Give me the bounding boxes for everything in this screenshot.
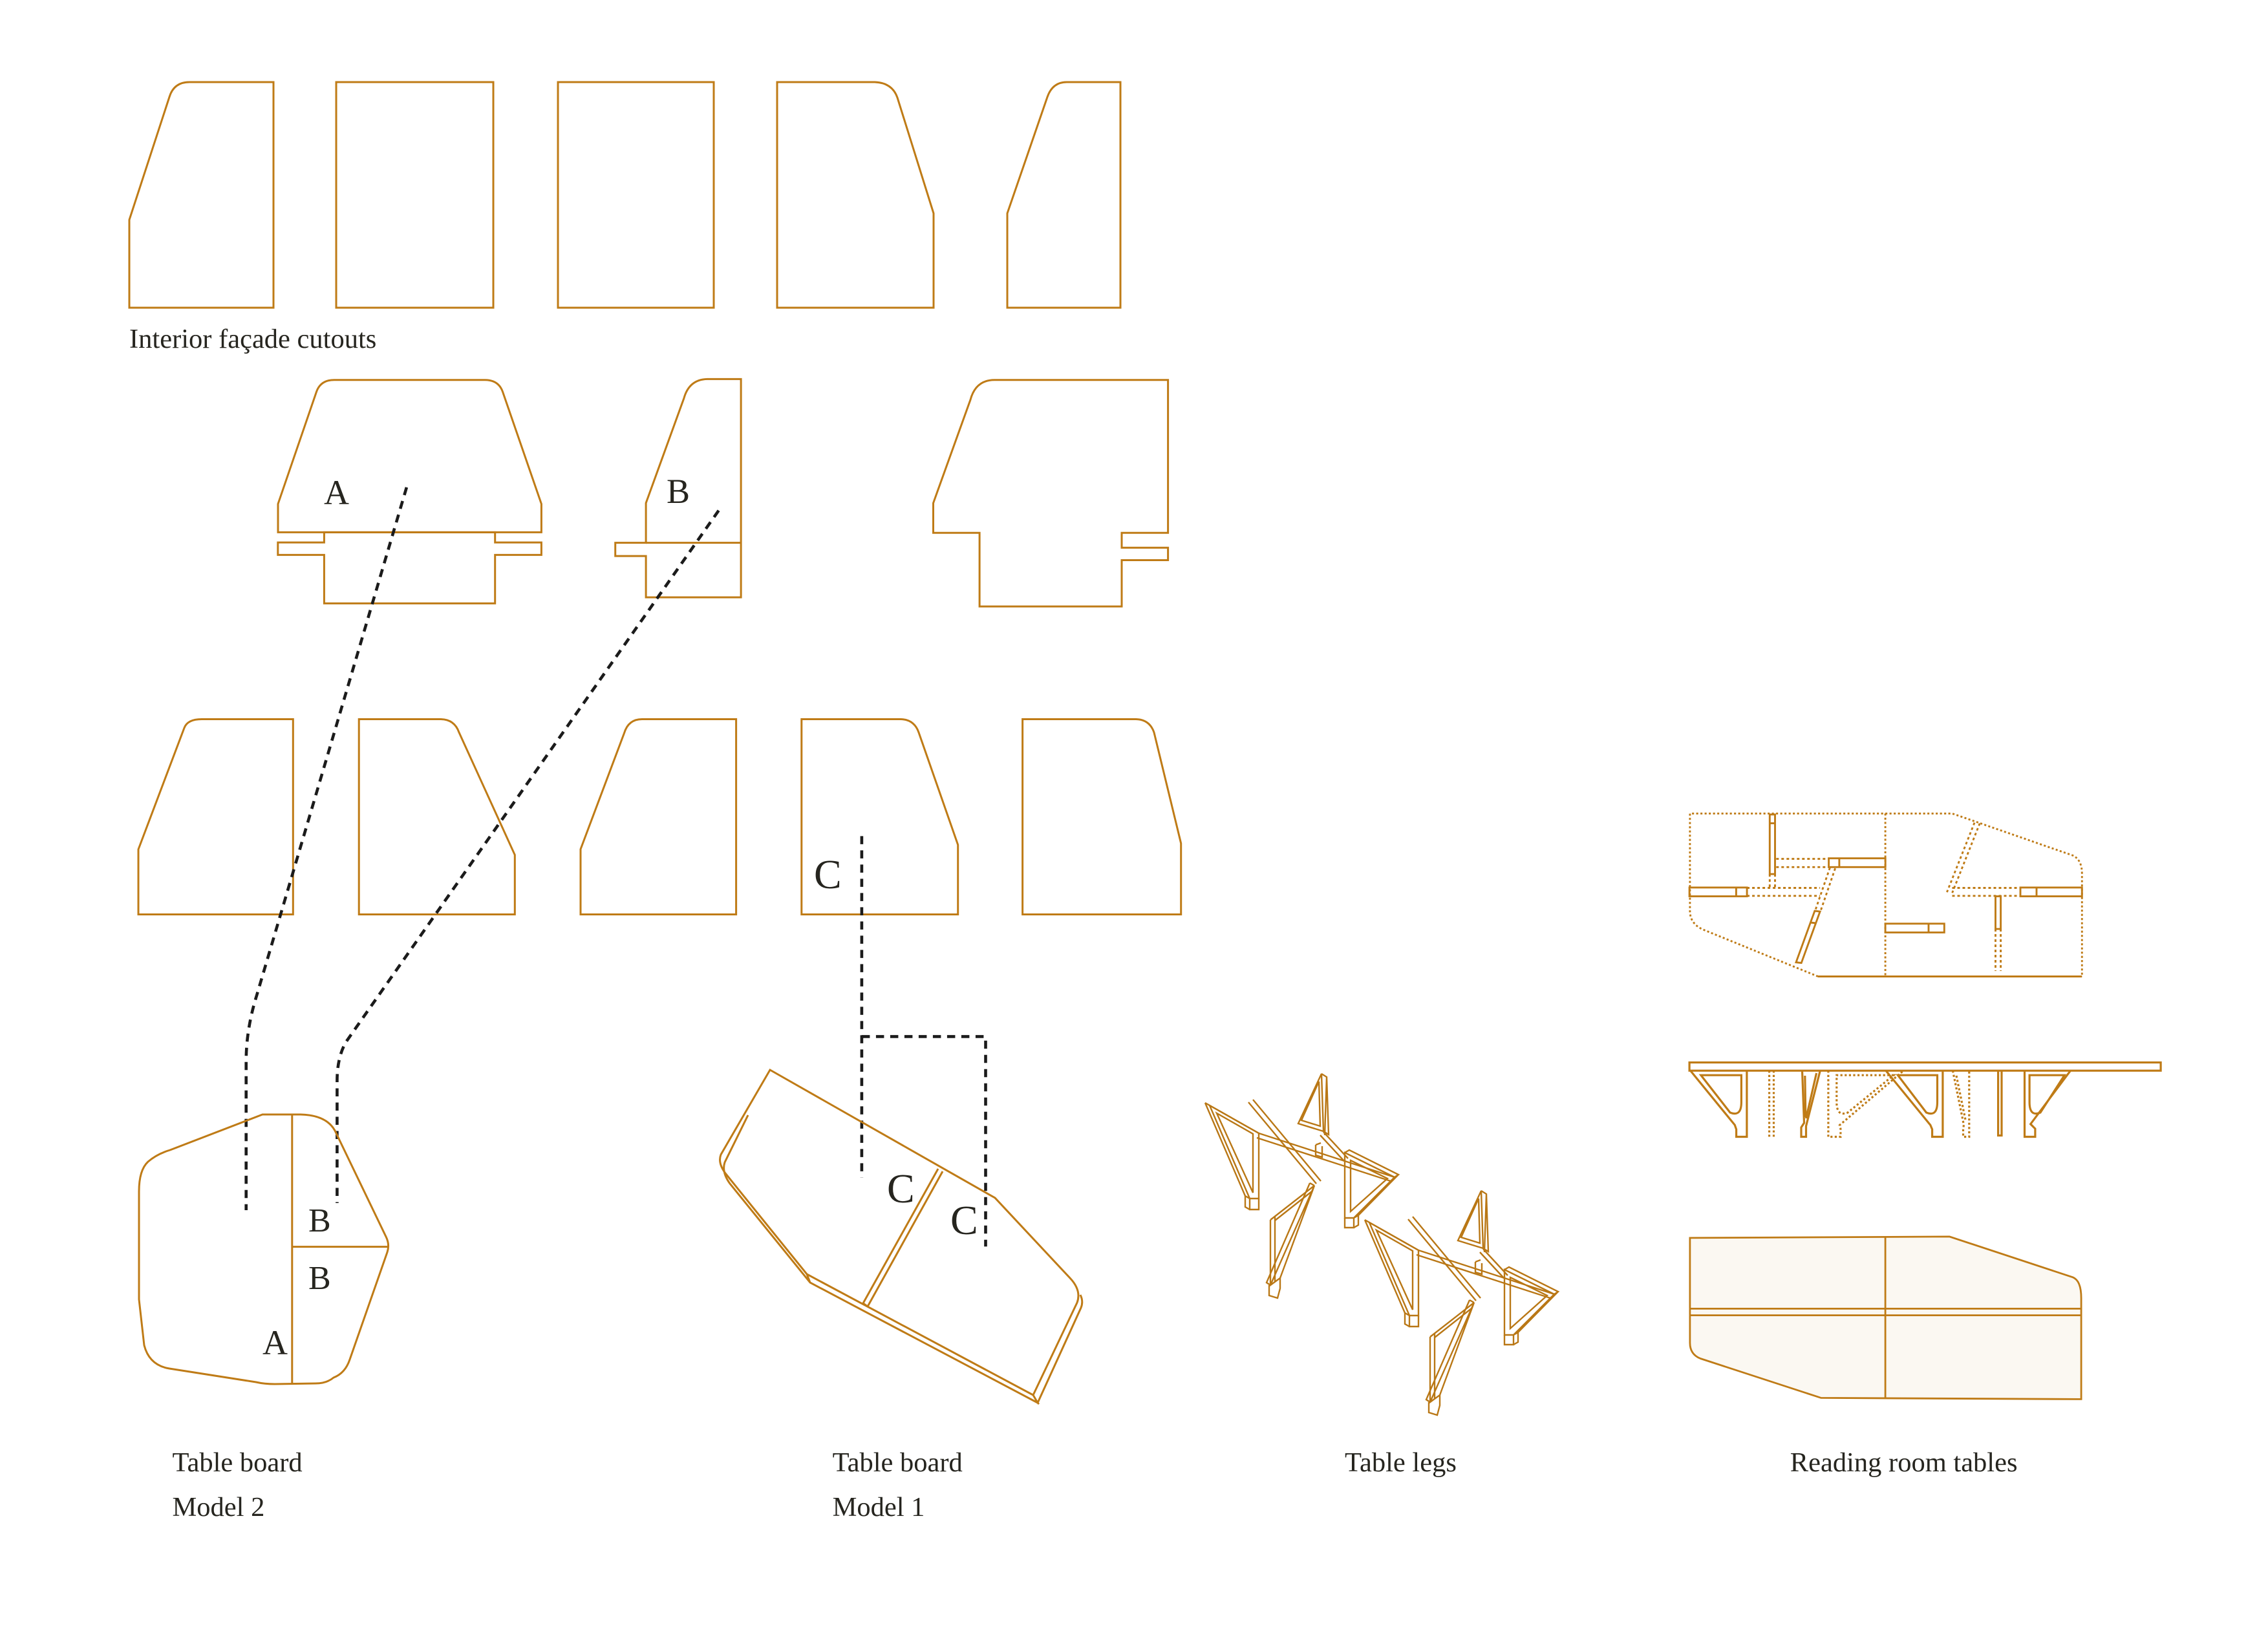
svg-text:C: C [887,1166,915,1211]
svg-text:Table board: Table board [833,1447,963,1478]
svg-text:A: A [262,1323,288,1362]
svg-text:Table board: Table board [173,1447,303,1478]
svg-text:B: B [308,1260,331,1297]
svg-text:C: C [950,1197,978,1243]
svg-text:Model 2: Model 2 [173,1492,265,1522]
svg-text:Reading room tables: Reading room tables [1790,1447,2018,1478]
svg-text:A: A [324,473,349,512]
svg-text:B: B [667,472,690,511]
svg-text:C: C [814,851,842,897]
svg-text:B: B [308,1202,331,1239]
svg-text:Table legs: Table legs [1345,1447,1457,1478]
svg-text:Model 1: Model 1 [833,1492,925,1522]
svg-text:Interior façade cutouts: Interior façade cutouts [129,324,376,354]
